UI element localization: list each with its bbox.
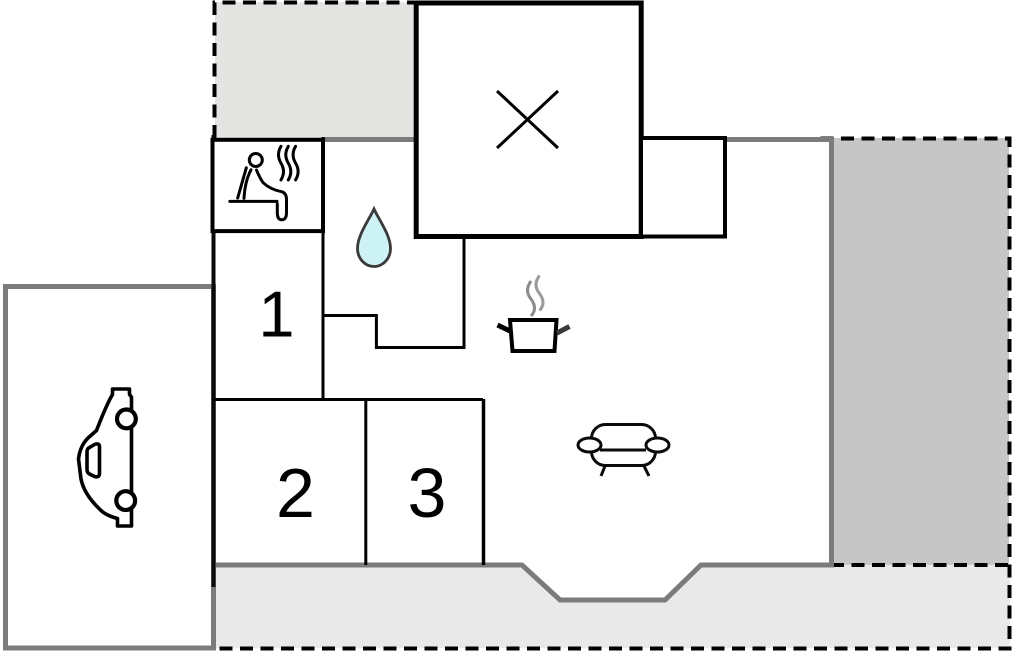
svg-text:1: 1: [258, 278, 294, 351]
svg-text:3: 3: [408, 454, 447, 532]
svg-text:2: 2: [276, 454, 315, 532]
